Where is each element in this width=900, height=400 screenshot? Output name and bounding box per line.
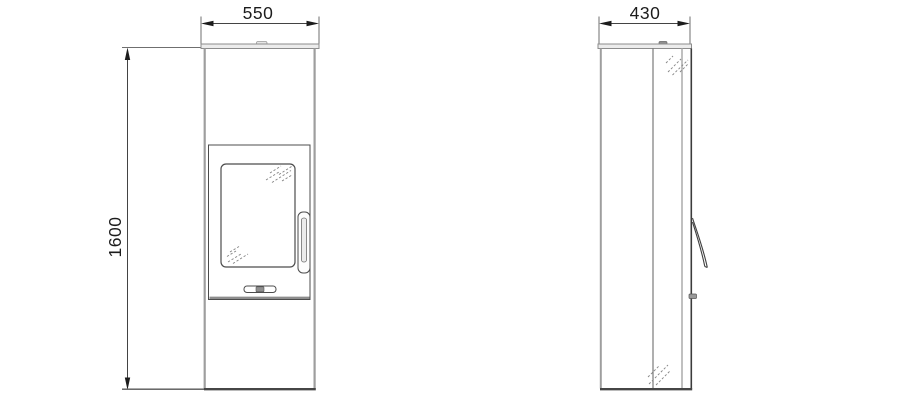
front-door: [209, 145, 311, 300]
front-height-dimension: 1600: [105, 48, 205, 391]
side-door-handle-outer-curve: [693, 218, 708, 268]
front-width-arrow-left-icon: [201, 21, 214, 26]
front-height-arrow-bottom-icon: [125, 378, 130, 391]
side-depth-arrow-right-icon: [678, 21, 691, 26]
front-air-vent-slider: [244, 286, 276, 293]
side-top-plate: [598, 44, 692, 49]
front-height-label: 1600: [105, 217, 125, 258]
side-reflection-top: [666, 56, 688, 75]
front-width-arrow-right-icon: [307, 21, 320, 26]
front-air-vent-knob: [256, 287, 264, 292]
stove-dimension-diagram: 550 1600: [0, 0, 900, 400]
side-depth-label: 430: [630, 3, 661, 23]
front-width-label: 550: [243, 3, 274, 23]
front-door-glass: [221, 164, 295, 267]
side-stove-body: [598, 42, 692, 390]
side-depth-dimension: 430: [599, 3, 690, 44]
front-width-dimension: 550: [201, 3, 319, 44]
front-top-plate: [201, 44, 319, 49]
front-door-handle-slot: [301, 218, 306, 262]
front-view: 550 1600: [105, 3, 319, 390]
side-door-handle: [693, 218, 708, 268]
side-air-vent-knob: [689, 294, 697, 299]
side-reflection-bottom: [648, 365, 670, 385]
front-door-handle: [298, 212, 310, 273]
side-depth-arrow-left-icon: [599, 21, 612, 26]
side-door-handle-inner-curve: [693, 222, 705, 267]
side-view: 430: [598, 3, 707, 389]
front-height-arrow-top-icon: [125, 48, 130, 61]
diagram-svg: 550 1600: [0, 0, 900, 400]
